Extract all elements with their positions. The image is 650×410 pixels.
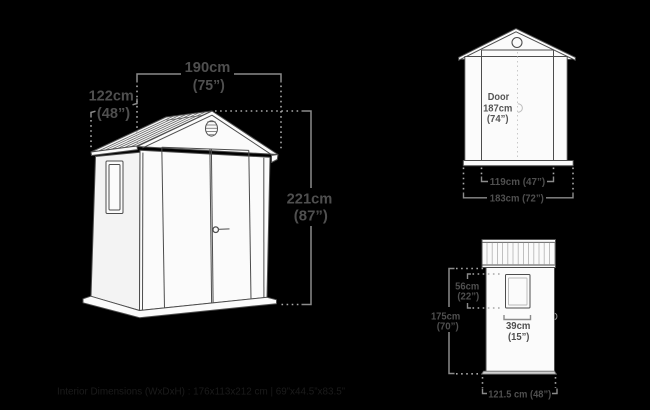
svg-text:122cm: 122cm (89, 88, 134, 104)
svg-text:190cm: 190cm (185, 60, 231, 76)
svg-text:(87”): (87”) (294, 208, 328, 224)
svg-text:(74”): (74”) (487, 114, 509, 125)
svg-text:187cm: 187cm (483, 104, 512, 115)
svg-text:(48”): (48”) (97, 106, 130, 122)
svg-text:221cm: 221cm (287, 191, 333, 207)
svg-text:(15”): (15”) (508, 332, 530, 343)
svg-text:183cm (72”): 183cm (72”) (490, 193, 544, 204)
svg-text:(22”): (22”) (457, 291, 479, 302)
svg-text:121.5 cm (48”): 121.5 cm (48”) (488, 390, 551, 401)
svg-text:Door: Door (488, 92, 510, 103)
svg-text:Interior Dimensions (WxDxH) :: Interior Dimensions (WxDxH) : 176x113x21… (57, 386, 345, 397)
svg-text:39cm: 39cm (506, 321, 531, 332)
svg-text:(70”): (70”) (437, 321, 459, 332)
svg-text:119cm (47”): 119cm (47”) (490, 177, 545, 188)
svg-text:(75”): (75”) (193, 78, 225, 94)
